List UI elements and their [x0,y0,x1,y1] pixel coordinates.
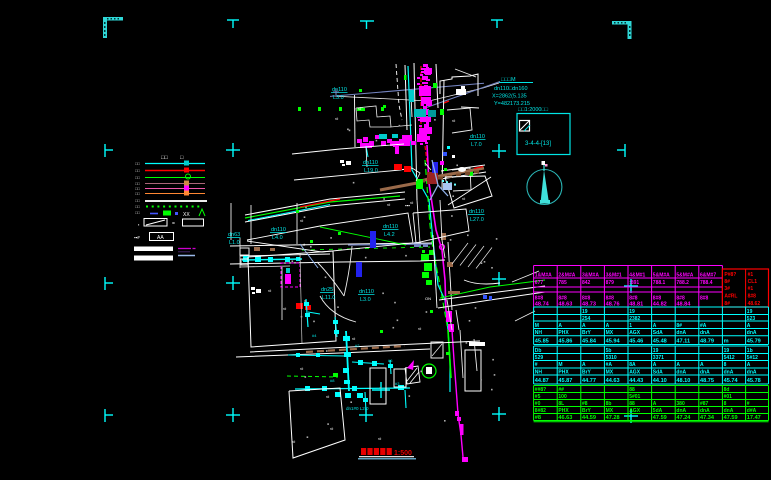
svg-text:3-4-4-[13]: 3-4-4-[13] [525,141,551,147]
svg-text:dnA: dnA [700,408,710,414]
svg-text:45.46: 45.46 [629,339,643,345]
svg-text:□□: □□ [135,161,140,166]
svg-text:▪#: ▪# [378,437,381,441]
svg-text:L4.2: L4.2 [384,232,395,238]
svg-text:A: A [582,362,586,368]
svg-text:□□: □□ [161,155,168,161]
svg-text:19: 19 [582,309,588,315]
svg-text:3#: 3# [724,286,730,292]
svg-text:CL1: CL1 [748,279,758,285]
svg-text:▪#: ▪# [358,107,361,111]
svg-text:879: 879 [606,280,615,286]
svg-text:842: 842 [582,280,591,286]
svg-text:L1.0: L1.0 [229,240,240,246]
svg-text:523: 523 [747,316,756,322]
svg-text:8#: 8# [676,323,682,329]
svg-text:8A: 8A [629,362,636,368]
svg-text:##: ## [558,387,564,393]
svg-text:#8: #8 [535,415,541,421]
svg-text:44.77: 44.77 [582,378,596,384]
svg-text:BrY: BrY [582,370,592,376]
svg-text:#: # [535,362,538,368]
svg-text:MX: MX [606,370,614,376]
svg-text:785: 785 [558,280,567,286]
svg-text:▪#: ▪# [335,117,338,121]
svg-text:44.59: 44.59 [582,415,596,421]
svg-text:4&M#1: 4&M#1 [629,273,645,279]
svg-text:A: A [558,323,562,329]
svg-text:1: 1 [629,323,632,329]
svg-text:▪#: ▪# [452,119,455,123]
svg-text:A: A [653,323,657,329]
svg-text:5&M#A: 5&M#A [653,273,670,279]
svg-text:#01: #01 [724,394,733,400]
svg-text:dnA: dnA [676,408,686,414]
svg-text:PHX: PHX [558,408,569,414]
svg-text:5#12: 5#12 [747,355,758,361]
svg-text:44.63: 44.63 [606,378,620,384]
svg-text:□□: □□ [135,210,140,215]
svg-text:88: 88 [629,401,635,407]
svg-text:#: # [747,401,750,407]
svg-text:48.62: 48.62 [748,301,761,307]
svg-text:L27.0: L27.0 [470,217,484,223]
svg-text:1&M#A: 1&M#A [535,273,552,279]
svg-text:L3.0: L3.0 [333,95,344,101]
svg-text:▪#: ▪# [330,427,333,431]
svg-text:8#8: 8#8 [700,296,709,302]
svg-text:47.59: 47.59 [724,415,738,421]
svg-text:M: M [535,323,539,329]
svg-text:47.11: 47.11 [676,339,690,345]
svg-text:L7.0: L7.0 [471,142,482,148]
svg-text:MX: MX [606,330,614,336]
svg-text:#0: #0 [535,401,541,407]
svg-text:45.74: 45.74 [724,378,739,384]
svg-text:▪#: ▪# [418,327,421,331]
svg-text:17.47: 17.47 [747,415,761,421]
svg-text:48.79: 48.79 [700,339,714,345]
svg-text:#8: #8 [330,378,335,383]
svg-text:BrY: BrY [582,408,592,414]
svg-text:SdA: SdA [653,330,663,336]
svg-text:3&M#1: 3&M#1 [606,273,622,279]
svg-text:5dA: 5dA [653,408,663,414]
svg-text:A: A [582,323,586,329]
svg-text:□□: □□ [135,198,140,203]
svg-text:5412: 5412 [724,355,735,361]
svg-text:ON: ON [425,296,431,301]
svg-text:AGX: AGX [629,408,641,414]
svg-text:#3: #3 [395,381,400,386]
svg-text:#8: #8 [582,401,588,407]
svg-text:8#: 8# [724,301,730,307]
svg-text:8#82: 8#82 [535,408,546,414]
svg-text:A: A [700,362,704,368]
svg-text:47.28: 47.28 [606,415,620,421]
svg-text:□□: □□ [135,168,140,173]
svg-text:dnA: dnA [724,408,734,414]
svg-text:3371: 3371 [653,355,664,361]
svg-text:dnA: dnA [747,370,757,376]
svg-text:5#01: 5#01 [629,394,640,400]
svg-text:▪#: ▪# [292,440,295,444]
svg-text:5310: 5310 [606,355,617,361]
svg-text:L19.0: L19.0 [364,168,378,174]
svg-text:P#8?: P#8? [724,272,736,278]
svg-text:19: 19 [653,348,659,354]
svg-text:▪#: ▪# [300,367,303,371]
svg-text:A: A [747,323,751,329]
svg-text:8b: 8b [606,401,612,407]
svg-text:8#8: 8#8 [748,294,757,300]
svg-text:dnA: dnA [747,330,757,336]
svg-text:=: = [172,221,175,227]
svg-text:788.4: 788.4 [700,280,713,286]
svg-text:2&M#A: 2&M#A [558,273,575,279]
svg-text:Y=482173.215: Y=482173.215 [494,101,530,107]
svg-text:▪#: ▪# [300,219,303,223]
svg-text:2382: 2382 [629,316,640,322]
svg-text:45.79: 45.79 [747,339,761,345]
svg-text:45.87: 45.87 [558,378,572,384]
svg-text:788.2: 788.2 [676,280,689,286]
svg-text:□□: □□ [135,191,140,196]
svg-text:L4.0: L4.0 [272,235,283,241]
svg-text:380: 380 [676,401,685,407]
svg-text:8L: 8L [558,401,564,407]
svg-text:#6: #6 [388,358,393,363]
svg-text:dnA: dnA [676,330,686,336]
svg-text:5b: 5b [606,348,612,354]
svg-text:8: 8 [724,401,727,407]
svg-text:dnA: dnA [724,370,734,376]
svg-text:A: A [676,362,680,368]
svg-text:PHX: PHX [558,370,569,376]
svg-text:#1: #1 [748,286,754,292]
svg-text:45.78: 45.78 [747,378,761,384]
svg-text:45.86: 45.86 [558,339,572,345]
svg-text:19: 19 [629,309,635,315]
svg-text:44.10: 44.10 [653,378,667,384]
svg-text:#4: #4 [312,333,317,338]
svg-text:100: 100 [558,394,567,400]
svg-text:47.34: 47.34 [700,415,715,421]
svg-text:▪#: ▪# [410,201,413,205]
svg-text:45.84: 45.84 [582,339,597,345]
svg-text:▪#: ▪# [352,337,355,341]
svg-text:#A: #A [606,362,613,368]
svg-text:dnA: dnA [700,330,710,336]
svg-text:d#A: d#A [747,408,757,414]
svg-text:A: A [747,362,751,368]
svg-text:▪#: ▪# [387,203,390,207]
svg-text:1b: 1b [747,348,753,354]
svg-text:dnA: dnA [676,370,686,376]
svg-text:##8?: ##8? [535,387,546,393]
svg-text:M: M [558,362,562,368]
svg-text:#2: #2 [355,343,360,348]
svg-text:8d: 8d [724,387,730,393]
svg-text:#87: #87 [700,401,709,407]
svg-text::891: :891 [629,280,639,286]
svg-text:▪#: ▪# [268,289,271,293]
svg-text:529: 529 [535,355,544,361]
svg-text:A: A [606,323,610,329]
svg-text:47.24: 47.24 [676,415,691,421]
svg-text:46.63: 46.63 [558,415,572,421]
svg-text:48.75: 48.75 [700,378,714,384]
svg-text:▪▪#: ▪▪# [134,235,140,240]
svg-text:▪#: ▪# [283,307,286,311]
svg-text:45.85: 45.85 [535,339,549,345]
svg-text:L3.0: L3.0 [360,297,371,303]
svg-text:SdA: SdA [653,370,663,376]
svg-text:Db: Db [535,348,542,354]
svg-text:MX: MX [606,408,614,414]
svg-text:▪#: ▪# [326,395,329,399]
svg-text:#5: #5 [535,394,541,400]
svg-text:5&M#A: 5&M#A [676,273,693,279]
svg-text:45.48: 45.48 [653,339,667,345]
svg-text:XX: XX [183,212,190,218]
svg-text:8: 8 [724,362,727,368]
svg-text:6&M#7: 6&M#7 [700,273,716,279]
svg-text:44.87: 44.87 [535,378,549,384]
svg-text:m: m [724,339,729,345]
svg-text:#A: #A [700,323,707,329]
svg-text:□□: □□ [135,204,140,209]
svg-text:677: 677 [535,280,544,286]
svg-text:X=2862(5.135: X=2862(5.135 [492,94,527,100]
svg-text:19: 19 [747,309,753,315]
svg-text:▪#: ▪# [302,243,305,247]
svg-text:254: 254 [582,316,591,322]
svg-text:48.10: 48.10 [676,378,690,384]
svg-text:A: A [653,362,657,368]
svg-text:PHX: PHX [558,330,569,336]
svg-text:□□: □□ [135,175,140,180]
svg-text:19: 19 [724,348,730,354]
svg-text:▪#: ▪# [462,197,465,201]
svg-text:44.43: 44.43 [629,378,643,384]
svg-text:dn1#0 L2.0: dn1#0 L2.0 [346,406,369,411]
svg-text:A: A [653,401,657,407]
svg-text:AGX: AGX [629,330,641,336]
svg-text:#1: #1 [748,272,754,278]
svg-text:45.94: 45.94 [606,339,621,345]
svg-text:8#: 8# [724,279,730,285]
svg-text:A#RL: A#RL [724,294,737,300]
svg-text:BrY: BrY [582,330,592,336]
svg-text:dn110□dn160: dn110□dn160 [494,86,528,92]
svg-text:47.59: 47.59 [653,415,667,421]
svg-text:□□1:2000□□: □□1:2000□□ [518,107,549,113]
svg-text:NH: NH [535,330,543,336]
svg-text:1:500: 1:500 [394,450,412,457]
svg-text:L11.0: L11.0 [322,295,335,301]
svg-text:AGX: AGX [629,370,641,376]
svg-text:788.1: 788.1 [653,280,666,286]
svg-text:AA: AA [157,235,164,241]
svg-text:NH: NH [535,370,543,376]
svg-text:dnA: dnA [700,370,710,376]
svg-text:3&M#A: 3&M#A [582,273,599,279]
svg-text:88: 88 [629,387,635,393]
